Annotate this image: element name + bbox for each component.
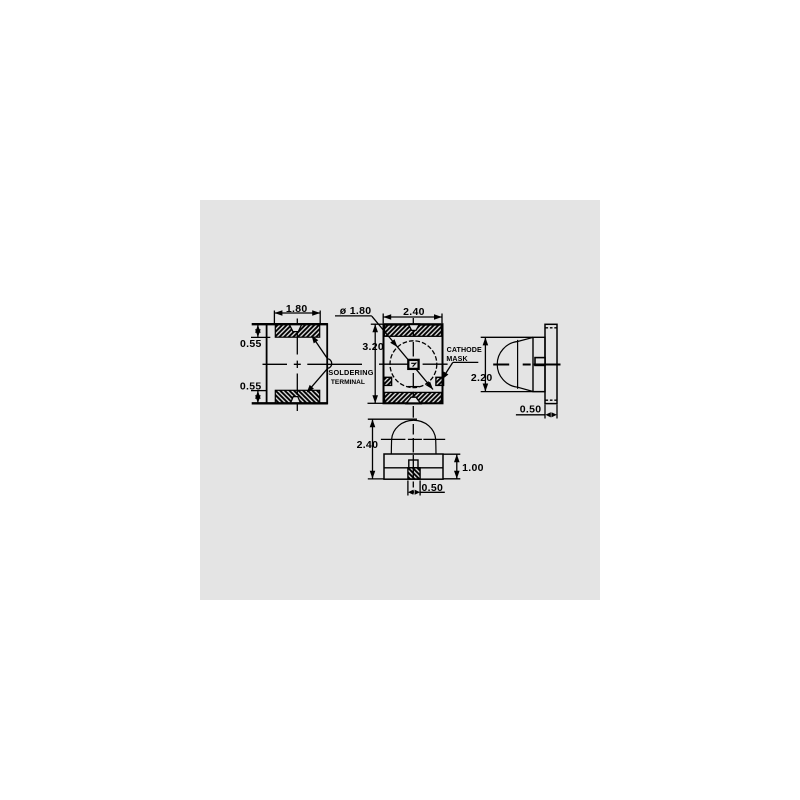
- svg-text:ø 1.80: ø 1.80: [340, 305, 372, 317]
- svg-text:TERMINAL: TERMINAL: [331, 379, 365, 386]
- svg-text:0.50: 0.50: [520, 404, 542, 416]
- svg-text:1.00: 1.00: [462, 462, 484, 474]
- svg-text:3.20: 3.20: [362, 341, 384, 353]
- svg-text:CATHODE: CATHODE: [447, 346, 482, 354]
- svg-text:SOLDERING: SOLDERING: [328, 368, 373, 377]
- svg-text:2.40: 2.40: [357, 439, 379, 451]
- svg-text:2.20: 2.20: [471, 372, 493, 384]
- svg-text:0.55: 0.55: [240, 338, 262, 350]
